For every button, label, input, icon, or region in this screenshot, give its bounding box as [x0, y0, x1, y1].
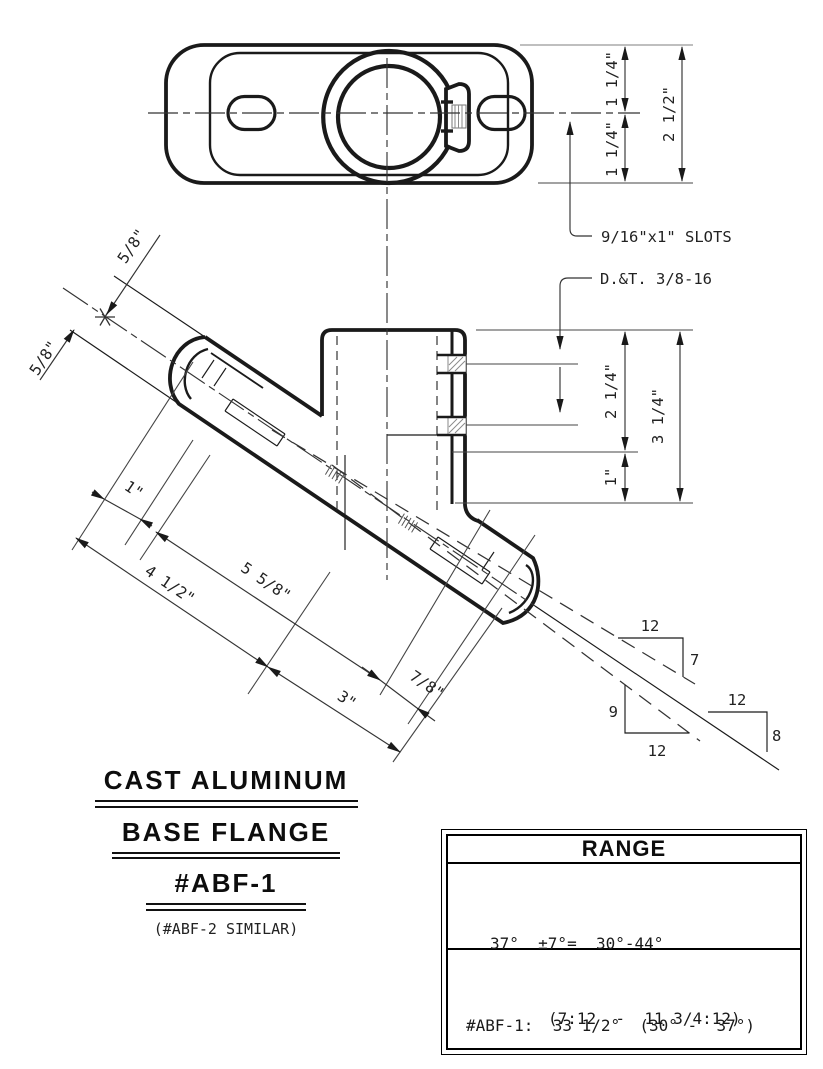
dim-text-slot-span: 5 5/8": [238, 559, 294, 605]
range-table-header: RANGE: [448, 836, 800, 864]
tapped-hole-2: [437, 417, 578, 435]
dim-text-lower-half: 1 1/4": [603, 121, 621, 177]
t2-run-label: 12: [648, 742, 667, 760]
slots-callout-text: 9/16"x1" SLOTS: [601, 228, 732, 246]
dim-text-right-span: 3": [334, 687, 360, 712]
plate-top-edge-left: [205, 337, 322, 416]
top-view: [148, 45, 640, 183]
tapped-hole-1: [437, 355, 578, 373]
title-part-number: #ABF-1: [88, 868, 364, 899]
range-models-row: #ABF-1: 33 1/2° (30° - 37°) #ABF-2: 40 1…: [448, 950, 800, 1069]
t3-rise-label: 8: [772, 727, 781, 745]
dim-text-edge-a: 5/8": [114, 226, 150, 267]
range-summary-row: 37° ±7°= 30°-44° (7:12 - 11 3/4:12): [448, 864, 800, 950]
dim-text-end: 1": [121, 477, 147, 502]
dim-text-upper-half: 1 1/4": [603, 51, 621, 107]
boss-bore-circle: [338, 66, 440, 168]
tap-callout-text: D.&T. 3/8-16: [600, 270, 712, 288]
title-material: CAST ALUMINUM: [88, 765, 364, 796]
boss-outer-circle: [323, 51, 449, 183]
tap-leader-line: [560, 278, 592, 349]
dim-text-tip: 7/8": [406, 667, 447, 703]
top-view-dimensions: 1 1/4" 1 1/4" 2 1/2" 9/16"x1" SLOTS: [520, 45, 732, 246]
range-table-inner-border: RANGE 37° ±7°= 30°-44° (7:12 - 11 3/4:12…: [446, 834, 802, 1050]
t3-run-label: 12: [728, 691, 747, 709]
triangle-8-12: [708, 712, 767, 752]
clamp-screw-thread: [452, 105, 466, 128]
top-surface-extension: [114, 276, 205, 337]
t2-rise-label: 9: [609, 703, 618, 721]
bottom-surface-extension: [70, 330, 179, 404]
title-underline: [95, 800, 358, 808]
title-block: CAST ALUMINUM BASE FLANGE #ABF-1 (#ABF-2…: [88, 765, 364, 938]
t1-run-label: 12: [641, 617, 660, 635]
slope-triangles: 12 7 9 12 12 8: [609, 617, 782, 760]
dim-text-base: 1": [602, 468, 620, 487]
range-row-abf1: #ABF-1: 33 1/2° (30° - 37°): [466, 1013, 800, 1038]
title-underline: [112, 852, 340, 860]
dim-text-tap-depth: 2 1/4": [602, 363, 620, 419]
t1-rise-label: 7: [690, 651, 699, 669]
range-table: RANGE 37° ±7°= 30°-44° (7:12 - 11 3/4:12…: [441, 829, 807, 1055]
title-part: BASE FLANGE: [88, 817, 364, 848]
hidden-slot-lines: [202, 360, 494, 584]
dim-text-edge-b: 5/8": [26, 338, 62, 379]
thread-ticks: [325, 465, 417, 533]
drawing-sheet: 1 1/4" 1 1/4" 2 1/2" 9/16"x1" SLOTS: [0, 0, 823, 1069]
slots-leader-line: [570, 122, 592, 236]
dim-text-overall-width: 2 1/2": [660, 86, 678, 142]
dim-text-boss-height: 3 1/4": [649, 388, 667, 444]
title-note: (#ABF-2 SIMILAR): [88, 920, 364, 938]
title-underline: [146, 903, 306, 911]
